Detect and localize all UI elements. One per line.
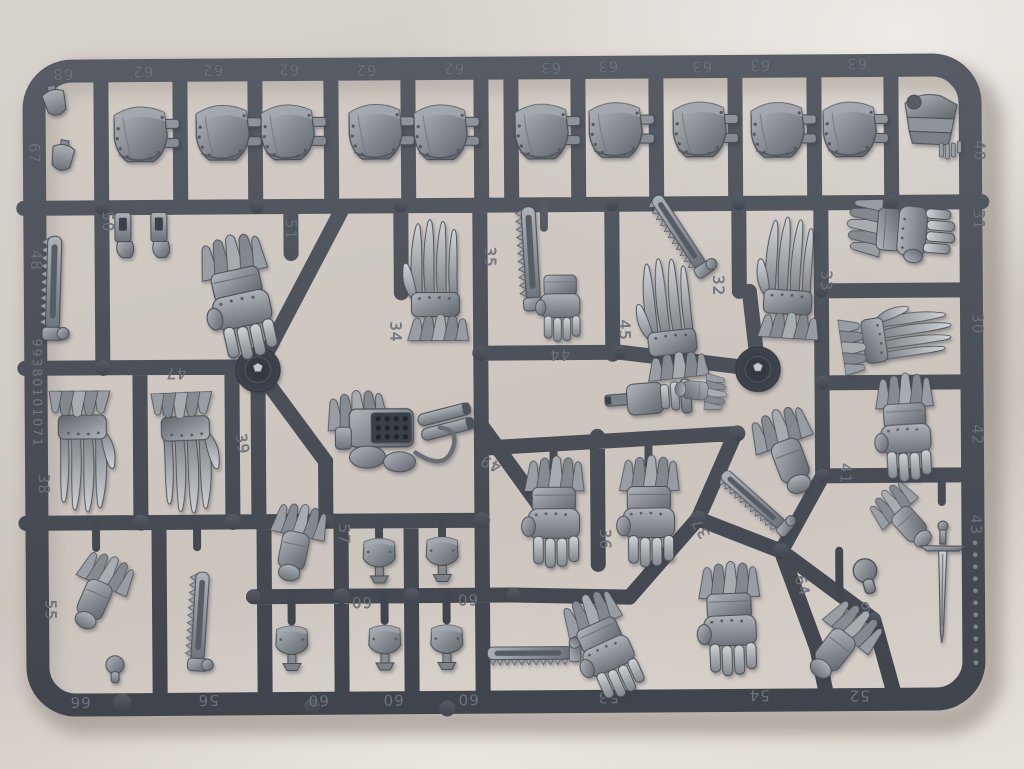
part-number-label: 40 [970,140,988,161]
part-number-label: 32 [709,275,727,296]
part-number-label: 60 [351,593,372,611]
part-number-label: 34 [387,321,405,342]
part-number-label: 60 [457,590,478,608]
part-number-label: 48 [27,250,45,271]
part-number-label: 62 [278,60,299,78]
part-number-label: 63 [597,57,618,75]
photo-of-model-sprue: 6862626262626363636363674838554031304243… [0,0,1024,769]
part-number-label: 47 [165,364,186,382]
part-number-label: 51 [282,219,300,240]
pip-dot [973,624,978,629]
pip-dot [973,576,978,581]
pip-dot [973,552,978,557]
sprue-serial-number: 99380101071 [30,339,46,449]
part-hinge-clip-50 [151,212,170,257]
part-number-label: 43 [967,514,985,535]
pip-dot [973,612,978,617]
part-number-label: 57 [335,524,353,545]
part-number-label: 63 [749,56,770,74]
part-number-label: 68 [52,65,73,83]
part-number-label: 62 [443,59,464,77]
part-number-label: 63 [846,55,867,73]
pip-dot [973,564,978,569]
part-number-label: 33 [817,270,835,291]
part-number-label: 41 [837,463,855,484]
part-number-label: 60 [458,690,479,708]
part-number-label: 39 [232,432,254,456]
part-number-label: 52 [849,687,870,705]
sprue-photo-svg: 6862626262626363636363674838554031304243… [0,0,1024,769]
part-number-label: 38 [35,474,53,495]
part-number-label: 60 [308,691,329,709]
part-number-label: 42 [968,424,986,445]
part-number-label: 45 [616,320,634,341]
part-number-label: 35 [481,247,499,268]
part-number-label: 44 [549,346,570,364]
part-number-label: 62 [132,62,153,80]
part-number-label: 60 [383,691,404,709]
part-number-label: 66 [70,693,91,711]
pip-dot [974,648,979,653]
part-number-label: 67 [25,143,43,164]
part-number-label: 63 [691,58,712,76]
part-number-label: 62 [202,61,223,79]
part-number-label: 54 [749,686,770,704]
sprue-frame-group: 6862626262626363636363674838554031304243… [23,54,993,720]
pip-dot [973,540,978,545]
part-number-label: 30 [969,313,987,334]
part-number-label: 36 [596,529,614,550]
part-hinge-clip-50 [115,213,134,258]
pip-dot [974,660,979,665]
part-number-label: 56 [198,691,219,709]
part-number-label: 50 [99,211,117,232]
pip-dot [973,588,978,593]
part-number-label: 63 [540,59,561,77]
part-number-label: 55 [41,600,59,621]
pip-dot [973,636,978,641]
moulding-dome [736,347,780,391]
part-number-label: 31 [970,209,988,230]
part-number-label: 62 [355,61,376,79]
pip-dot [973,600,978,605]
